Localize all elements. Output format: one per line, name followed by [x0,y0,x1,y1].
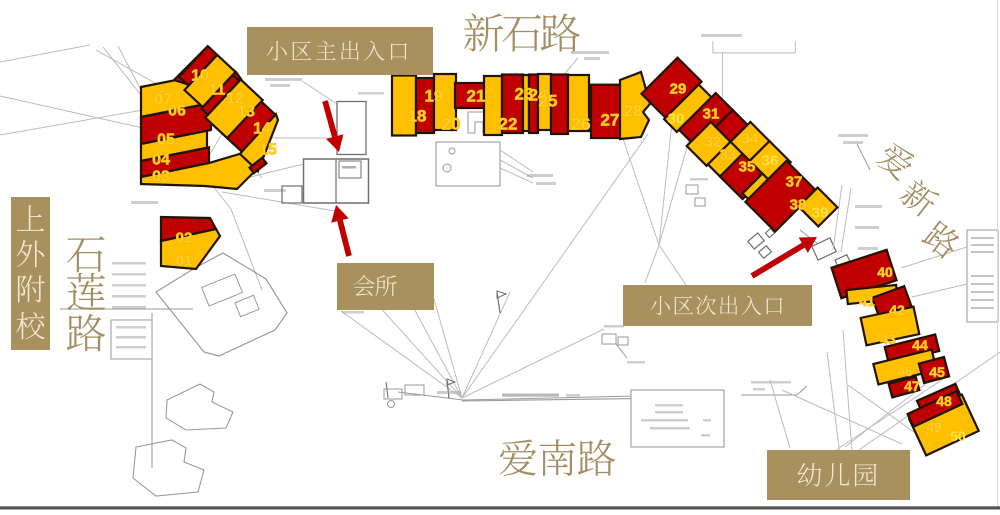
svg-text:40: 40 [877,264,893,280]
svg-text:20: 20 [442,115,461,134]
svg-text:50: 50 [950,428,966,444]
svg-text:22: 22 [499,115,518,134]
svg-text:01: 01 [176,253,193,270]
svg-text:38: 38 [790,197,807,214]
svg-text:36: 36 [762,153,779,170]
svg-text:28: 28 [624,102,643,121]
svg-text:39: 39 [812,205,829,222]
svg-text:18: 18 [408,107,427,126]
svg-text:30: 30 [668,111,685,128]
svg-text:21: 21 [467,87,486,106]
svg-text:11: 11 [209,82,226,99]
svg-text:04: 04 [152,152,170,169]
svg-text:47: 47 [904,378,920,394]
svg-text:44: 44 [912,337,928,353]
svg-text:43: 43 [880,331,896,347]
svg-text:42: 42 [889,302,905,318]
svg-text:27: 27 [601,111,620,130]
svg-text:25: 25 [539,92,558,111]
svg-text:15: 15 [259,142,277,159]
svg-text:45: 45 [929,364,945,380]
svg-text:37: 37 [786,174,803,191]
svg-text:31: 31 [703,106,720,123]
svg-text:26: 26 [572,115,591,134]
svg-text:03: 03 [152,169,170,186]
svg-text:41: 41 [859,293,875,309]
svg-text:29: 29 [670,81,687,98]
svg-text:19: 19 [425,87,444,106]
svg-text:35: 35 [739,159,756,176]
svg-text:48: 48 [936,393,952,409]
svg-text:13: 13 [237,104,255,121]
svg-text:49: 49 [926,419,942,435]
svg-text:34: 34 [742,131,759,148]
svg-text:05: 05 [157,132,175,149]
svg-text:14: 14 [253,121,271,138]
svg-text:02: 02 [176,230,193,247]
svg-text:07: 07 [154,92,172,109]
svg-text:33: 33 [720,147,737,164]
svg-text:46: 46 [897,363,913,379]
svg-text:10: 10 [191,68,209,85]
